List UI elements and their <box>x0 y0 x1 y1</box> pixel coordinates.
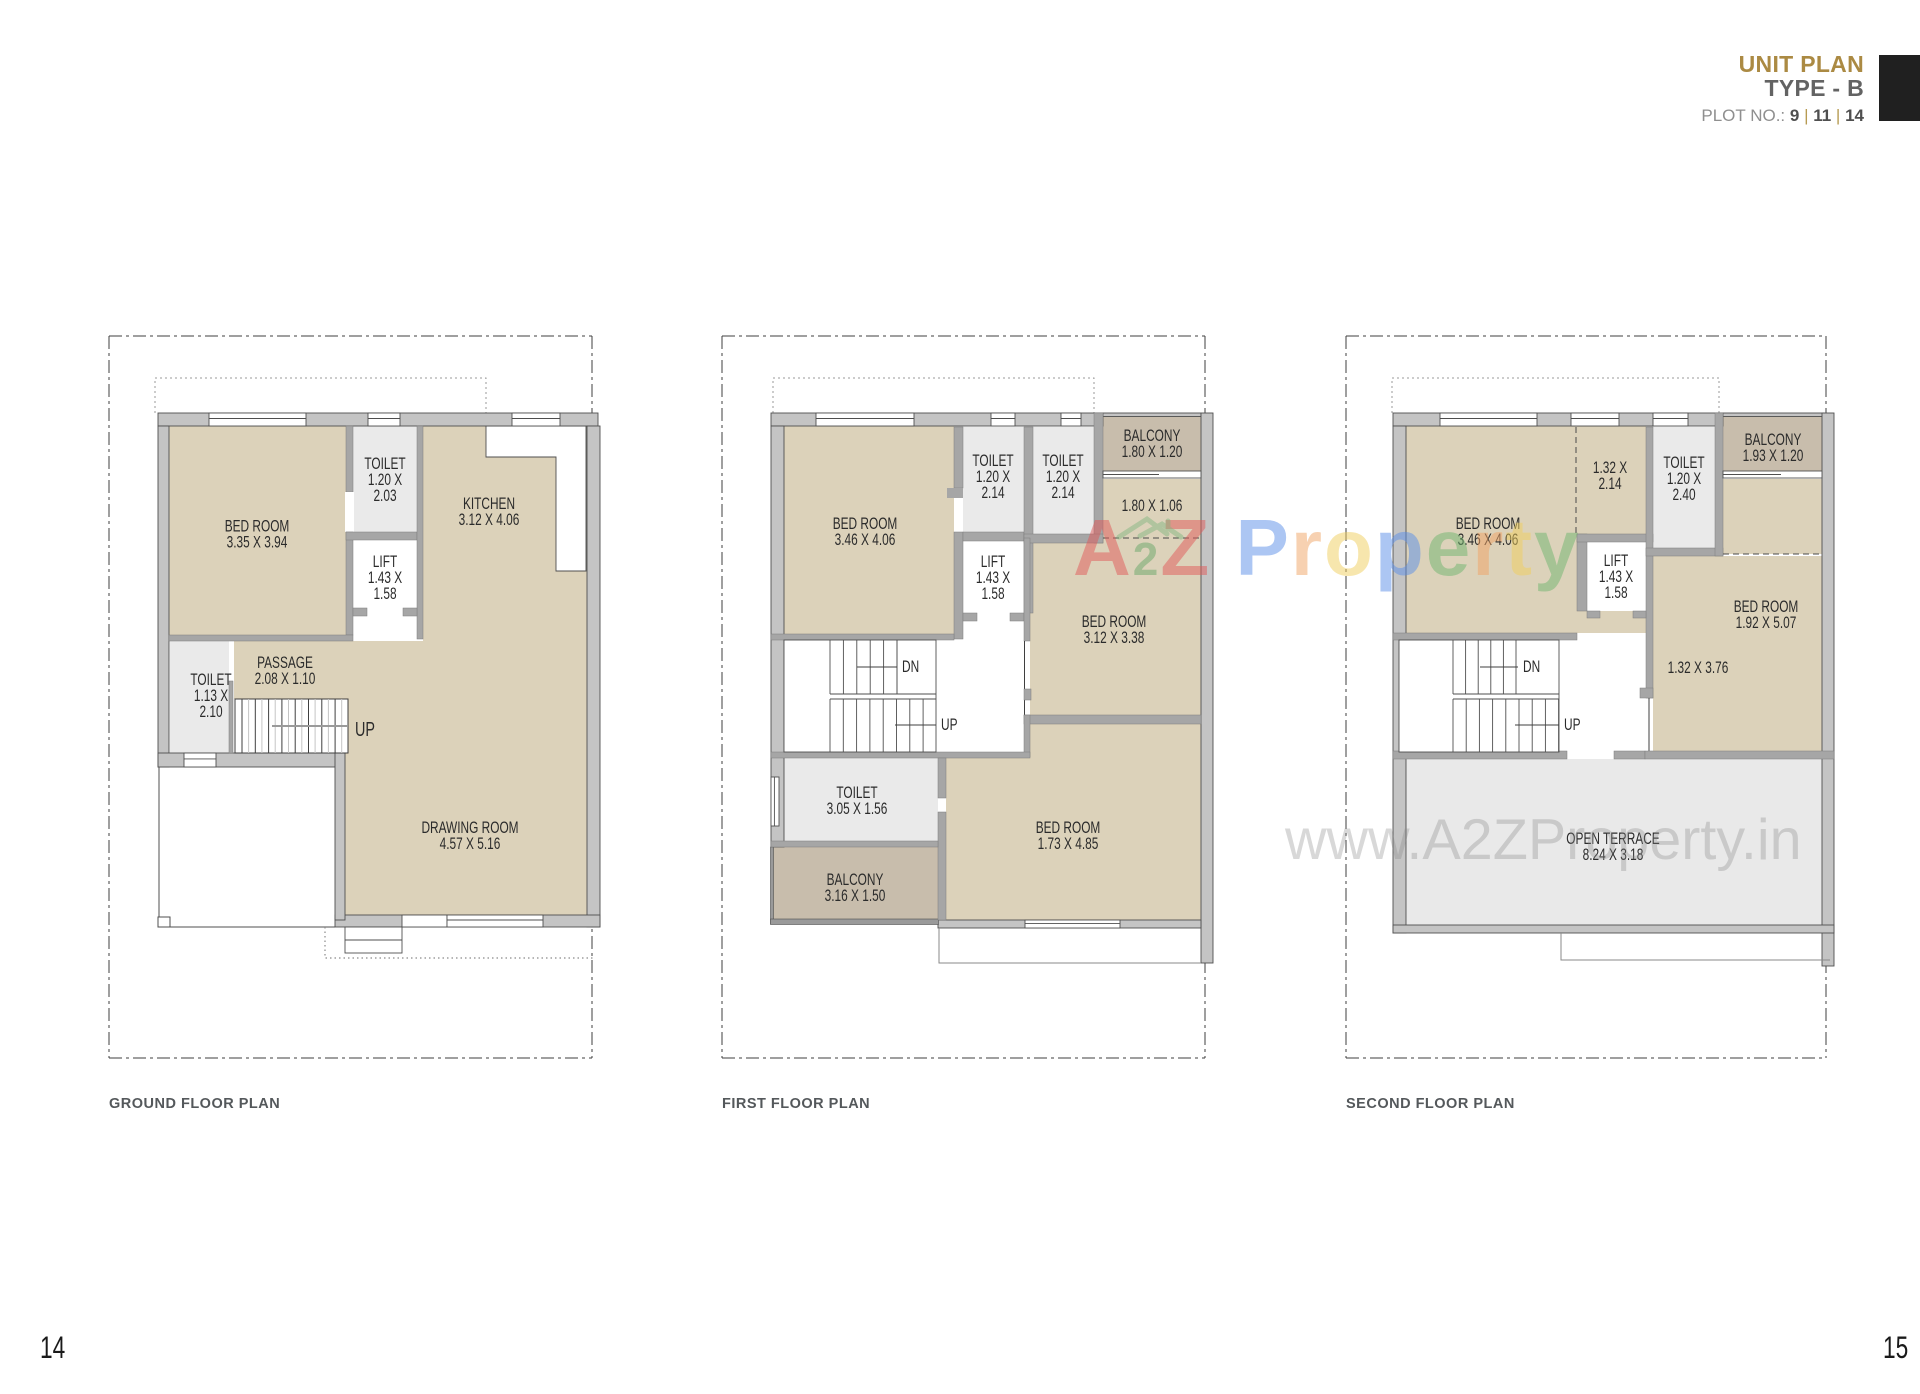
svg-text:4.57 X 5.16: 4.57 X 5.16 <box>440 835 501 853</box>
svg-text:1.58: 1.58 <box>373 585 396 603</box>
svg-text:TYPE - B: TYPE - B <box>1764 75 1864 101</box>
svg-text:1.93 X 1.20: 1.93 X 1.20 <box>1743 447 1804 465</box>
svg-text:SECOND FLOOR PLAN: SECOND FLOOR PLAN <box>1346 1096 1515 1112</box>
svg-text:1.73 X 4.85: 1.73 X 4.85 <box>1038 835 1099 853</box>
svg-text:2.14: 2.14 <box>1598 475 1621 493</box>
svg-text:UNIT PLAN: UNIT PLAN <box>1739 51 1864 77</box>
svg-text:1.32 X 3.76: 1.32 X 3.76 <box>1668 659 1729 677</box>
svg-text:FIRST FLOOR PLAN: FIRST FLOOR PLAN <box>722 1096 870 1112</box>
svg-text:UP: UP <box>355 718 375 741</box>
svg-text:UP: UP <box>1564 716 1580 734</box>
svg-text:3.05 X 1.56: 3.05 X 1.56 <box>827 800 888 818</box>
svg-text:3.16 X 1.50: 3.16 X 1.50 <box>825 887 886 905</box>
svg-text:PLOT NO.: 9 | 11 | 14: PLOT NO.: 9 | 11 | 14 <box>1701 106 1864 125</box>
svg-text:UP: UP <box>941 716 957 734</box>
svg-text:2.03: 2.03 <box>373 487 396 505</box>
svg-text:www.A2ZProperty.in: www.A2ZProperty.in <box>1284 808 1802 872</box>
svg-text:1.80 X 1.20: 1.80 X 1.20 <box>1122 443 1183 461</box>
svg-text:DN: DN <box>902 658 919 676</box>
svg-text:3.35 X 3.94: 3.35 X 3.94 <box>227 534 288 552</box>
svg-text:14: 14 <box>40 1329 65 1365</box>
svg-text:3.12 X 3.38: 3.12 X 3.38 <box>1084 629 1145 647</box>
svg-text:2.08 X 1.10: 2.08 X 1.10 <box>255 670 316 688</box>
svg-text:2.14: 2.14 <box>981 484 1004 502</box>
svg-text:1.92 X 5.07: 1.92 X 5.07 <box>1736 614 1797 632</box>
svg-text:2.40: 2.40 <box>1672 486 1695 504</box>
svg-text:DN: DN <box>1523 658 1540 676</box>
svg-text:3.12 X 4.06: 3.12 X 4.06 <box>459 511 520 529</box>
svg-text:15: 15 <box>1883 1329 1908 1365</box>
svg-text:3.46 X 4.06: 3.46 X 4.06 <box>835 531 896 549</box>
svg-text:2.14: 2.14 <box>1051 484 1074 502</box>
svg-text:2.10: 2.10 <box>199 703 222 721</box>
svg-text:1.58: 1.58 <box>1604 584 1627 602</box>
svg-text:1.58: 1.58 <box>981 585 1004 603</box>
svg-text:GROUND FLOOR PLAN: GROUND FLOOR PLAN <box>109 1096 280 1112</box>
